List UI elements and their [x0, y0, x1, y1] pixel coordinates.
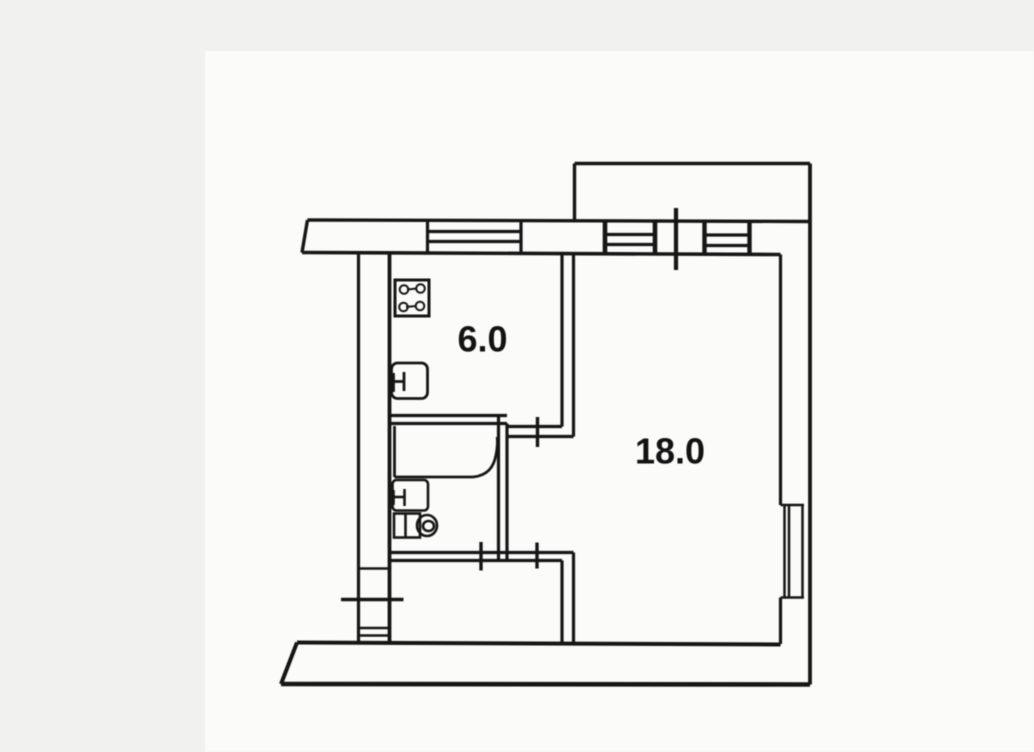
- svg-text:6.0: 6.0: [458, 319, 508, 360]
- svg-text:18.0: 18.0: [635, 431, 705, 472]
